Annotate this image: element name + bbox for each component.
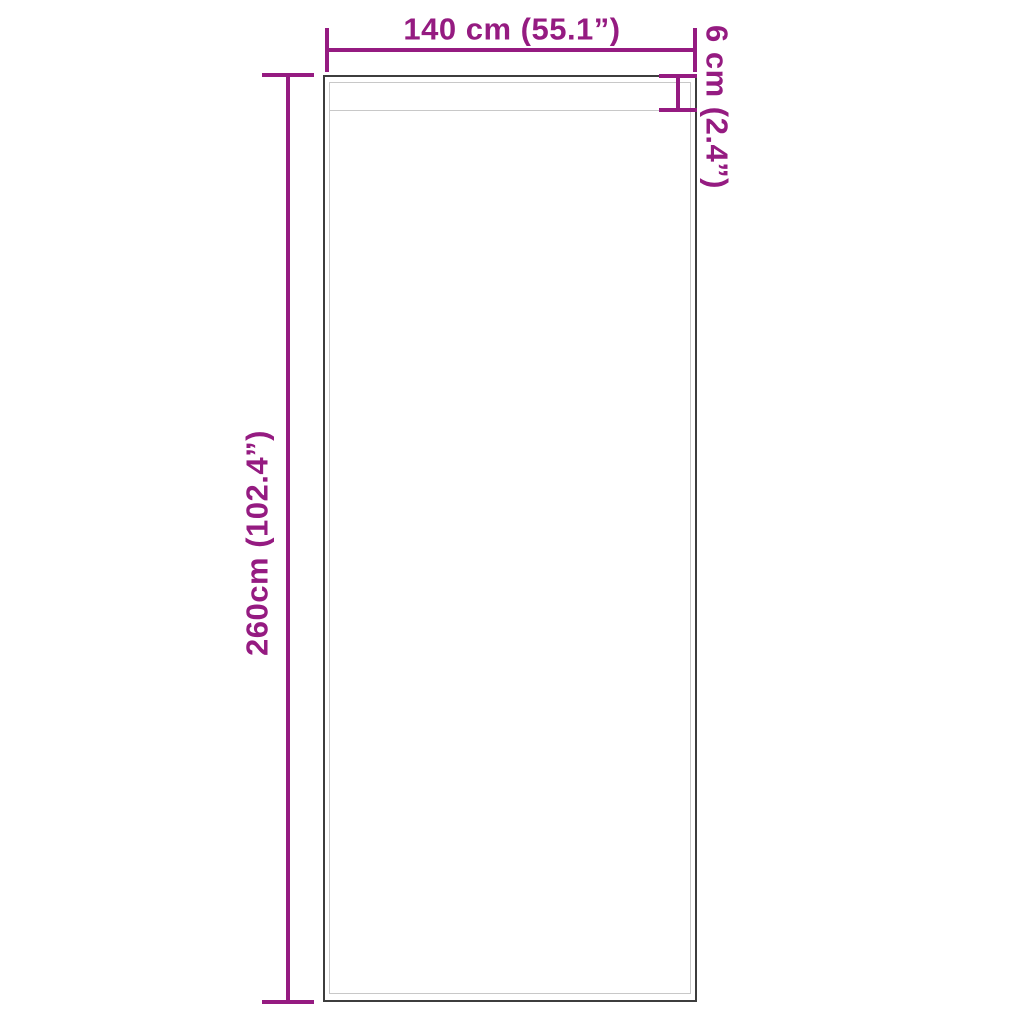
dimension-diagram: 140 cm (55.1”) 260cm (102.4”) 6 cm (2.4”… (0, 0, 1024, 1024)
height-dimension-label: 260cm (102.4”) (242, 430, 273, 656)
curtain-panel (323, 75, 697, 1002)
width-dimension-right-tick (693, 28, 697, 72)
rod-pocket-seam-line (329, 110, 691, 111)
pocket-dimension-bottom-tick (659, 108, 697, 112)
pocket-dimension-top-tick (659, 74, 697, 78)
width-dimension-label: 140 cm (55.1”) (403, 14, 620, 45)
panel-inner-outline (329, 82, 691, 994)
width-dimension-left-tick (325, 28, 329, 72)
pocket-dimension-label: 6 cm (2.4”) (702, 25, 733, 189)
height-dimension-bottom-tick (262, 1000, 314, 1004)
width-dimension-bar (325, 48, 697, 52)
pocket-dimension-bar (676, 74, 680, 112)
pocket-dimension-bracket (659, 74, 697, 112)
height-dimension-top-tick (262, 73, 314, 77)
height-dimension-bar (286, 73, 290, 1004)
